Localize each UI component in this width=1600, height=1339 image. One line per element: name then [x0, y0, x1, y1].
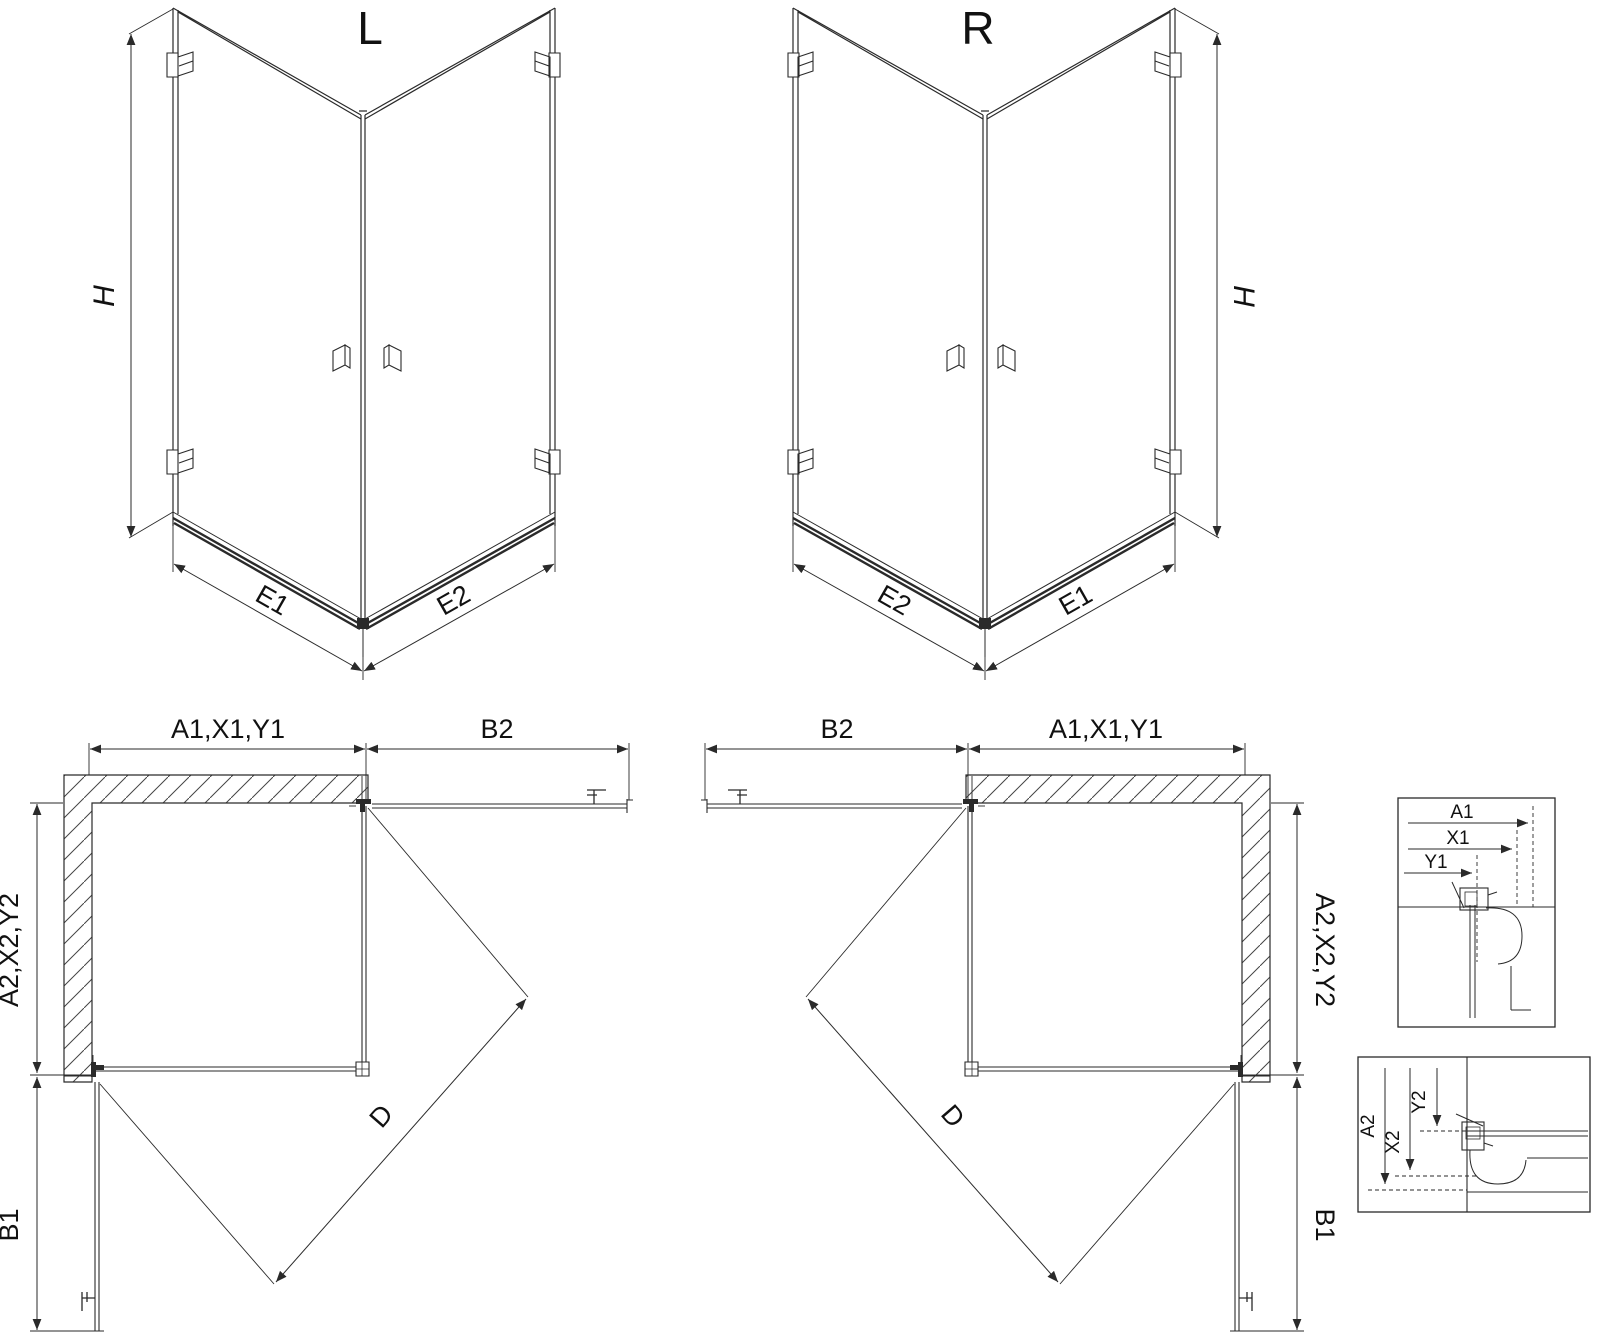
right-3d-view	[788, 8, 1219, 680]
dim-label-b1-leftplan: B1	[0, 1208, 24, 1241]
dim-label-d-rightplan: D	[935, 1099, 970, 1133]
dim-label-e2-right3d: E2	[873, 579, 917, 621]
dim-label-b2-rightplan: B2	[820, 714, 853, 744]
dim-label-height-right3d: H	[1227, 285, 1260, 307]
dim-label-b1-rightplan: B1	[1310, 1208, 1340, 1241]
dim-label-a2group-rightplan: A2,X2,Y2	[1310, 893, 1340, 1007]
dim-label-b2-leftplan: B2	[480, 714, 513, 744]
right-plan-wall-hatch	[966, 775, 1270, 1082]
dim-label-e2-left3d: E2	[432, 579, 476, 621]
variant-label-left: L	[357, 2, 383, 54]
dim-label-e1-right3d: E1	[1054, 579, 1098, 621]
dim-label-a1group-leftplan: A1,X1,Y1	[171, 714, 285, 744]
variant-label-right: R	[961, 2, 994, 54]
left-plan-view	[30, 743, 633, 1331]
detail-label-a2: A2	[1358, 1114, 1379, 1137]
detail-label-x2: X2	[1383, 1130, 1404, 1153]
right-plan-view	[701, 743, 1304, 1331]
left-3d-view	[129, 8, 560, 680]
dim-label-a1group-rightplan: A1,X1,Y1	[1049, 714, 1163, 744]
dim-label-a2group-leftplan: A2,X2,Y2	[0, 893, 24, 1007]
detail-label-a1: A1	[1450, 802, 1473, 823]
dim-label-d-leftplan: D	[363, 1099, 398, 1133]
technical-drawing-page: L R H H E1 E2 E2 E1 A1,X1,Y1 B2 A2,X2,Y2…	[0, 0, 1600, 1339]
detail-label-y1: Y1	[1424, 852, 1447, 873]
dim-label-height-left3d: H	[88, 285, 121, 307]
detail-label-x1: X1	[1446, 828, 1469, 849]
left-plan-wall-hatch	[64, 775, 368, 1082]
detail-label-y2: Y2	[1409, 1090, 1430, 1113]
detail-view-top	[1398, 798, 1555, 1027]
technical-drawing-canvas: L R H H E1 E2 E2 E1 A1,X1,Y1 B2 A2,X2,Y2…	[0, 0, 1600, 1339]
dim-label-e1-left3d: E1	[251, 579, 295, 621]
